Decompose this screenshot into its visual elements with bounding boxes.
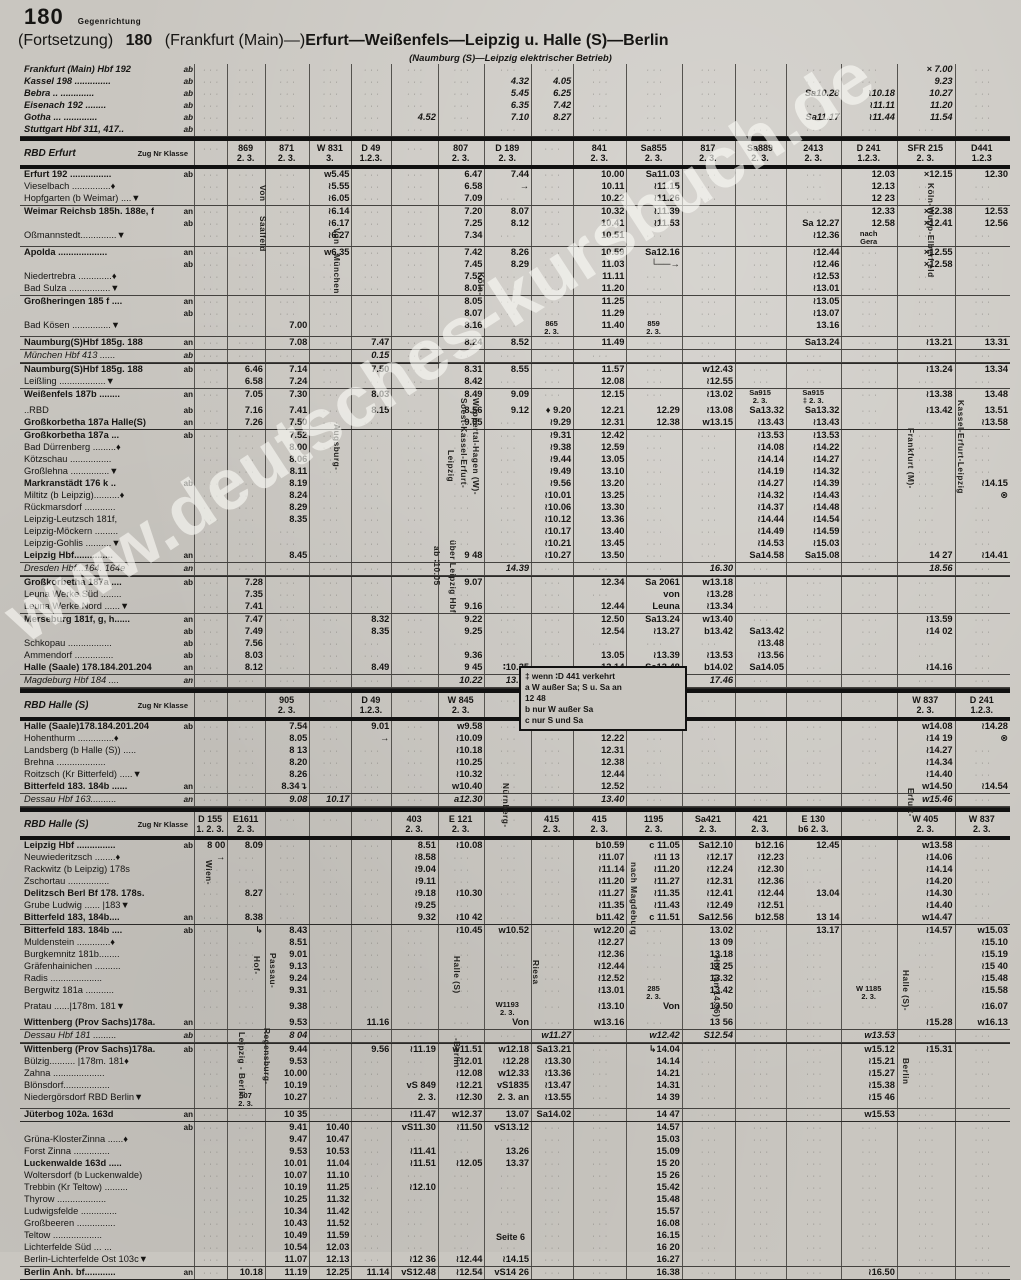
empty-cell	[194, 1109, 227, 1121]
empty-cell	[351, 577, 391, 589]
empty-cell	[682, 112, 735, 124]
station-name: RBD Erfurt	[24, 148, 76, 159]
arrival-departure-label: ab	[184, 430, 194, 441]
time-cell: SFR 215 2. 3.	[897, 141, 955, 165]
time-cell: 9.47	[265, 1134, 309, 1146]
empty-cell	[573, 1267, 626, 1279]
empty-cell	[194, 64, 227, 76]
empty-cell	[391, 601, 438, 613]
time-cell: w12.37	[438, 1109, 485, 1121]
time-cell: ≀10.32	[438, 769, 485, 781]
time-cell: 2. 3.	[391, 1092, 438, 1108]
time-cell: 9.07	[438, 577, 485, 589]
empty-cell	[735, 124, 786, 136]
empty-cell	[531, 769, 573, 781]
empty-cell	[194, 693, 227, 717]
time-cell: ≀12.44	[786, 247, 841, 259]
time-cell: ≀6.05	[309, 193, 351, 205]
time-cell: 10.54	[265, 1242, 309, 1254]
empty-cell	[265, 193, 309, 205]
arrival-departure-label: ab	[184, 1030, 194, 1041]
empty-cell	[786, 1109, 841, 1121]
empty-cell	[955, 1146, 1010, 1158]
time-cell: ≀15.19	[955, 949, 1010, 961]
empty-cell	[841, 405, 896, 417]
time-cell: 6.58	[438, 181, 485, 193]
time-cell: 12.22	[573, 733, 626, 745]
time-cell: ≀10 42	[438, 912, 485, 924]
empty-cell	[391, 563, 438, 575]
station-block: Halle (Saale)178.184.201.204ab7.549.01w9…	[20, 721, 1010, 808]
empty-cell	[309, 112, 351, 124]
empty-cell	[955, 1254, 1010, 1266]
station-name: Zahna ....................	[24, 1068, 105, 1079]
station-row: Leipzig Hbf ...............ab8 008.098.5…	[20, 840, 1010, 852]
empty-cell	[391, 638, 438, 650]
arrival-departure-label: ab	[184, 405, 194, 416]
time-cell: 7.10	[484, 112, 531, 124]
station-label: Berlin Anh. bf............an	[20, 1267, 194, 1279]
time-cell: 11.49	[573, 337, 626, 349]
station-row: Erfurt 192 ................abw5.456.477.…	[20, 169, 1010, 181]
empty-cell	[841, 1001, 896, 1017]
time-cell: ≀13.24	[897, 364, 955, 376]
empty-cell	[194, 181, 227, 193]
empty-cell	[626, 466, 681, 478]
empty-cell	[194, 589, 227, 601]
empty-cell	[438, 638, 485, 650]
empty-cell	[841, 638, 896, 650]
empty-cell	[265, 247, 309, 259]
time-cell: W 831 3.	[309, 141, 351, 165]
timetable-grid: Frankfurt (Main) Hbf 192ab× 7.00Kassel 1…	[20, 64, 1010, 1280]
time-cell: 12 23	[841, 193, 896, 205]
empty-cell	[438, 563, 485, 575]
time-cell: Sa11.03	[626, 169, 681, 181]
station-name: Hohenthurm ..............♦	[24, 733, 119, 744]
empty-cell	[484, 769, 531, 781]
empty-cell	[786, 100, 841, 112]
station-name: Delitzsch Berl Bf 178. 178s.	[24, 888, 144, 899]
empty-cell	[438, 1170, 485, 1182]
time-cell: 7.50	[351, 364, 391, 376]
empty-cell	[351, 949, 391, 961]
empty-cell	[227, 76, 265, 88]
empty-cell	[484, 550, 531, 562]
time-cell: 403 2. 3.	[391, 812, 438, 836]
empty-cell	[682, 1092, 735, 1108]
empty-cell	[786, 64, 841, 76]
time-cell: →	[484, 181, 531, 193]
empty-cell	[309, 563, 351, 575]
station-row: Vieselbach ...............♦≀5.556.58→10.…	[20, 181, 1010, 193]
empty-cell	[955, 193, 1010, 205]
empty-cell	[897, 526, 955, 538]
station-row: Grube Ludwig ...... |183▼≀9.25≀11.35≀11.…	[20, 900, 1010, 912]
empty-cell	[531, 626, 573, 638]
zug-nr-klasse-label: Zug Nr Klasse	[138, 820, 194, 829]
empty-cell	[438, 1218, 485, 1230]
empty-cell	[786, 1092, 841, 1108]
station-name: Apolda ...................	[24, 247, 107, 258]
empty-cell	[484, 601, 531, 613]
station-label: ab	[20, 259, 194, 271]
empty-cell	[351, 900, 391, 912]
empty-cell	[786, 601, 841, 613]
empty-cell	[484, 973, 531, 985]
time-cell: ≀15.21	[841, 1056, 896, 1068]
empty-cell	[391, 490, 438, 502]
empty-cell	[735, 794, 786, 806]
empty-cell	[438, 852, 485, 864]
empty-cell	[786, 1146, 841, 1158]
station-label: Forst Zinna ..............	[20, 1146, 194, 1158]
empty-cell	[841, 1242, 896, 1254]
empty-cell	[438, 1146, 485, 1158]
empty-cell	[573, 1134, 626, 1146]
empty-cell	[735, 206, 786, 218]
empty-cell	[955, 638, 1010, 650]
time-cell: ≀15 40	[955, 961, 1010, 973]
arrival-departure-label: an	[184, 550, 194, 561]
empty-cell	[682, 1109, 735, 1121]
empty-cell	[531, 1206, 573, 1218]
empty-cell	[484, 478, 531, 490]
time-cell: vS13.12	[484, 1122, 531, 1134]
station-name: Leuna Werke Nord ......▼	[24, 601, 129, 612]
station-row: Großkorbetha 187a ....ab7.289.0712.34Sa …	[20, 577, 1010, 589]
station-label: Kassel 198 ..............ab	[20, 76, 194, 88]
route-origin-label: Passau-	[268, 953, 278, 1013]
time-cell: 871 2. 3.	[265, 141, 309, 165]
time-cell: D 189 2. 3.	[484, 141, 531, 165]
time-cell: →	[351, 733, 391, 745]
empty-cell	[391, 100, 438, 112]
empty-cell	[531, 1194, 573, 1206]
station-row: Burgkemnitz 181b........9.01≀12.3613.18≀…	[20, 949, 1010, 961]
station-label: Lichterfelde Süd ... ...	[20, 1242, 194, 1254]
empty-cell	[391, 376, 438, 388]
time-cell: 7.52	[265, 430, 309, 442]
station-row: Grüna-KlosterZinna ......♦9.4710.4715.03	[20, 1134, 1010, 1146]
empty-cell	[626, 769, 681, 781]
empty-cell	[265, 864, 309, 876]
empty-cell	[897, 1254, 955, 1266]
station-label: Blönsdorf..................	[20, 1080, 194, 1092]
empty-cell	[351, 417, 391, 429]
station-row: ..RBDab7.167.418.158.569.12♦ 9.2012.2112…	[20, 405, 1010, 417]
empty-cell	[682, 550, 735, 562]
empty-cell	[897, 308, 955, 320]
empty-cell	[351, 206, 391, 218]
station-row: Rackwitz (b Leipzig) 178s≀9.04≀11.14≀11.…	[20, 864, 1010, 876]
station-row: Großlehna ...............▼8.11≀9.4913.10…	[20, 466, 1010, 478]
time-cell: b10.59	[573, 840, 626, 852]
empty-cell	[484, 230, 531, 246]
empty-cell	[227, 852, 265, 864]
time-cell: ≀12.54	[438, 1267, 485, 1279]
empty-cell	[391, 1218, 438, 1230]
empty-cell	[786, 852, 841, 864]
empty-cell	[735, 64, 786, 76]
time-cell: 8.27	[531, 112, 573, 124]
empty-cell	[682, 1254, 735, 1266]
empty-cell	[391, 514, 438, 526]
time-cell: 12.56	[955, 218, 1010, 230]
arrival-departure-label: ab	[184, 1122, 194, 1133]
station-name: Großkorbetha 187a ...	[24, 430, 119, 441]
time-cell: ≀12.44	[573, 961, 626, 973]
time-cell: 7.05	[227, 389, 265, 405]
station-row: Miltitz (b Leipzig)..........♦8.24≀10.01…	[20, 490, 1010, 502]
empty-cell	[227, 900, 265, 912]
empty-cell	[227, 1017, 265, 1029]
empty-cell	[265, 88, 309, 100]
empty-cell	[194, 949, 227, 961]
station-row: Niedergörsdorf RBD Berlin▼507 2. 3.10.27…	[20, 1092, 1010, 1108]
empty-cell	[897, 1170, 955, 1182]
time-cell: ≀13.34	[682, 601, 735, 613]
empty-cell	[194, 320, 227, 336]
empty-cell	[735, 757, 786, 769]
station-row: Dessau Hbf 181 .........ab8 04w11.27w12.…	[20, 1029, 1010, 1043]
empty-cell	[227, 169, 265, 181]
empty-cell	[682, 100, 735, 112]
empty-cell	[194, 76, 227, 88]
title-main: Erfurt—Weißenfels—Leipzig u. Halle (S)—B…	[305, 32, 668, 49]
empty-cell	[391, 259, 438, 271]
empty-cell	[391, 693, 438, 717]
empty-cell	[484, 1242, 531, 1254]
station-label: Großkorbetha 187a ...ab	[20, 430, 194, 442]
time-cell: w15.12	[841, 1044, 896, 1056]
empty-cell	[786, 794, 841, 806]
time-cell: w13.53	[841, 1030, 896, 1042]
time-cell: ≀5.55	[309, 181, 351, 193]
empty-cell	[841, 550, 896, 562]
empty-cell	[194, 405, 227, 417]
empty-cell	[484, 1170, 531, 1182]
empty-cell	[391, 283, 438, 295]
station-name: Luckenwalde 163d .....	[24, 1158, 122, 1169]
time-cell: 8.15	[351, 405, 391, 417]
time-cell: ≀14.54	[786, 514, 841, 526]
time-cell: 13 25	[682, 961, 735, 973]
station-label: Dessau Hbf 181 .........ab	[20, 1030, 194, 1042]
time-cell: ≀12.36	[735, 876, 786, 888]
arrival-departure-label: ab	[184, 925, 194, 936]
station-row: Leipzig Hbf...............an8.459 48≀10.…	[20, 550, 1010, 562]
route-origin-label: Köln-	[476, 272, 486, 314]
time-cell: ≀12.53	[786, 271, 841, 283]
time-cell: 13.05	[573, 650, 626, 662]
time-cell: ≀6.27	[309, 230, 351, 246]
arrival-departure-label: an	[184, 337, 194, 348]
empty-cell	[626, 757, 681, 769]
station-row: Bad Dürrenberg .........♦8.00≀9.3812.59≀…	[20, 442, 1010, 454]
station-label: Großkorbetha 187a ....ab	[20, 577, 194, 589]
empty-cell	[265, 271, 309, 283]
empty-cell	[897, 124, 955, 136]
empty-cell	[786, 563, 841, 575]
empty-cell	[841, 337, 896, 349]
arrival-departure-label: an	[184, 614, 194, 625]
time-cell: ×12.15	[897, 169, 955, 181]
time-cell: w12.43	[682, 364, 735, 376]
station-name: Leipzig-Leutzsch 181f,	[24, 514, 117, 525]
empty-cell	[531, 1134, 573, 1146]
time-cell: ≀10.01	[531, 490, 573, 502]
time-cell: ≀12.36	[786, 230, 841, 246]
zug-nr-klasse-label: Zug Nr Klasse	[138, 149, 194, 158]
station-name: München Hbf 413 ......	[24, 350, 115, 361]
time-cell: 15.03	[626, 1134, 681, 1146]
time-cell: D441 1.2.3	[955, 141, 1010, 165]
empty-cell	[531, 1267, 573, 1279]
empty-cell	[955, 1122, 1010, 1134]
empty-cell	[682, 1080, 735, 1092]
time-cell: 11.32	[309, 1194, 351, 1206]
time-cell: 2. 3. an	[484, 1092, 531, 1108]
station-name: Dessau Hbf 163..........	[24, 794, 117, 805]
empty-cell	[227, 693, 265, 717]
empty-cell	[955, 308, 1010, 320]
time-cell: w11.27	[531, 1030, 573, 1042]
empty-cell	[573, 589, 626, 601]
empty-cell	[484, 638, 531, 650]
empty-cell	[309, 405, 351, 417]
time-cell: 11.29	[573, 308, 626, 320]
time-cell: 11.20	[897, 100, 955, 112]
station-row: Frankfurt (Main) Hbf 192ab× 7.00	[20, 64, 1010, 76]
empty-cell	[227, 478, 265, 490]
empty-cell	[955, 912, 1010, 924]
empty-cell	[351, 230, 391, 246]
empty-cell	[955, 888, 1010, 900]
empty-cell	[682, 526, 735, 538]
arrival-departure-label: an	[184, 247, 194, 258]
time-cell: ≀14.48	[786, 502, 841, 514]
empty-cell	[309, 1109, 351, 1121]
arrival-departure-label: an	[184, 781, 194, 792]
time-cell: 15.42	[626, 1182, 681, 1194]
time-cell: D 155 1. 2. 3.	[194, 812, 227, 836]
empty-cell	[309, 1001, 351, 1017]
route-origin-label: München	[332, 254, 342, 316]
time-cell: 7.42	[531, 100, 573, 112]
empty-cell	[194, 1158, 227, 1170]
station-label: Leuna Werke Süd ........	[20, 589, 194, 601]
station-name: Weißenfels 187b ........	[24, 389, 120, 400]
empty-cell	[227, 876, 265, 888]
empty-cell	[391, 526, 438, 538]
station-label: Oßmannstedt..............▼	[20, 230, 194, 246]
station-row: Neuwiederitzsch ........♦→≀8.58≀11.07≀11…	[20, 852, 1010, 864]
empty-cell	[841, 124, 896, 136]
empty-cell	[841, 247, 896, 259]
time-cell: 17.46	[682, 675, 735, 687]
empty-cell	[786, 1134, 841, 1146]
empty-cell	[265, 64, 309, 76]
empty-cell	[351, 124, 391, 136]
empty-cell	[841, 454, 896, 466]
station-name: Vieselbach ...............♦	[24, 181, 115, 192]
time-cell: 12.13	[841, 181, 896, 193]
page-footer: Seite 6	[0, 1232, 1021, 1242]
empty-cell	[194, 563, 227, 575]
page-header: 180Gegenrichtung	[24, 4, 141, 30]
station-name: Gräfenhainichen ..........	[24, 961, 121, 972]
empty-cell	[484, 502, 531, 514]
empty-cell	[194, 550, 227, 562]
empty-cell	[682, 259, 735, 271]
empty-cell	[227, 745, 265, 757]
time-cell: b12.58	[735, 912, 786, 924]
empty-cell	[955, 563, 1010, 575]
empty-cell	[682, 88, 735, 100]
time-cell: Sa13.24	[786, 337, 841, 349]
empty-cell	[351, 638, 391, 650]
empty-cell	[194, 1134, 227, 1146]
time-cell: ≀12.44	[438, 1254, 485, 1266]
station-label: Stuttgart Hbf 311, 417..ab	[20, 124, 194, 136]
time-cell: ≀11.41	[391, 1146, 438, 1158]
empty-cell	[309, 1080, 351, 1092]
route-origin-label: Nürnberg-	[501, 783, 511, 859]
station-label: Rückmarsdorf ............	[20, 502, 194, 514]
station-row: Hopfgarten (b Weimar) ....▼≀6.057.0910.2…	[20, 193, 1010, 205]
time-cell: b14.02	[682, 662, 735, 674]
empty-cell	[309, 490, 351, 502]
empty-cell	[391, 271, 438, 283]
arrival-departure-label: an	[184, 417, 194, 428]
empty-cell	[194, 308, 227, 320]
empty-cell	[194, 1080, 227, 1092]
empty-cell	[351, 1218, 391, 1230]
time-cell: 8.24	[265, 490, 309, 502]
empty-cell	[484, 64, 531, 76]
station-row: Oßmannstedt..............▼≀6.277.3410.51…	[20, 230, 1010, 246]
station-label: Halle (Saale) 178.184.201.204an	[20, 662, 194, 674]
empty-cell	[626, 478, 681, 490]
route-origin-label: Halle (S)	[452, 956, 462, 1014]
empty-cell	[841, 840, 896, 852]
station-row: Schkopau .................ab7.56≀13.48	[20, 638, 1010, 650]
station-row: Roitzsch (Kr Bitterfeld) .....▼8.26≀10.3…	[20, 769, 1010, 781]
time-cell: ≀14.32	[786, 466, 841, 478]
station-name: Berlin Anh. bf............	[24, 1267, 116, 1278]
empty-cell	[682, 757, 735, 769]
time-cell: w15.03	[955, 925, 1010, 937]
station-label: Großbeeren ...............	[20, 1218, 194, 1230]
empty-cell	[351, 794, 391, 806]
time-cell: ≀15.48	[955, 973, 1010, 985]
empty-cell	[786, 206, 841, 218]
station-label: Bebra .. .............ab	[20, 88, 194, 100]
route-origin-label: Von	[332, 228, 342, 252]
station-name: Leipzig Hbf ...............	[24, 840, 115, 851]
empty-cell	[227, 721, 265, 733]
time-cell: 13.20	[573, 478, 626, 490]
empty-cell	[438, 1134, 485, 1146]
empty-cell	[351, 937, 391, 949]
empty-cell	[735, 283, 786, 295]
empty-cell	[841, 925, 896, 937]
empty-cell	[194, 577, 227, 589]
station-row: Dessau Hbf 163..........an9.0810.17a12.3…	[20, 793, 1010, 807]
station-name: Großheringen 185 f ....	[24, 296, 122, 307]
empty-cell	[391, 141, 438, 165]
